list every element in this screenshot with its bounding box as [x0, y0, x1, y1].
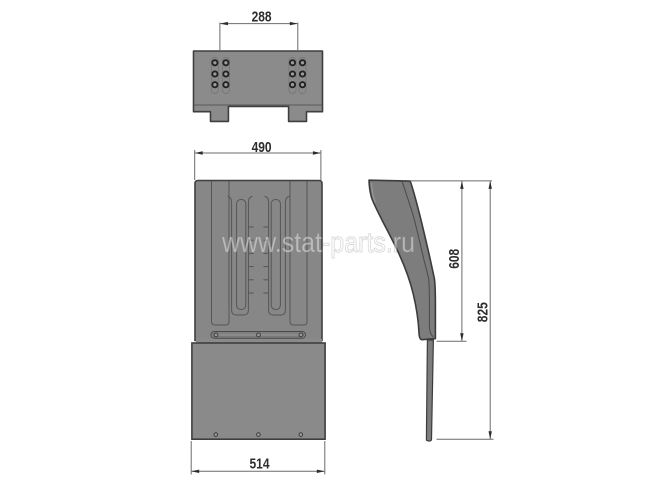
svg-text:514: 514	[250, 457, 270, 473]
svg-text:490: 490	[252, 140, 272, 156]
svg-text:825: 825	[476, 302, 492, 322]
svg-text:www.stat-parts.ru: www.stat-parts.ru	[221, 227, 415, 259]
svg-text:288: 288	[252, 10, 272, 26]
svg-text:608: 608	[447, 249, 463, 269]
